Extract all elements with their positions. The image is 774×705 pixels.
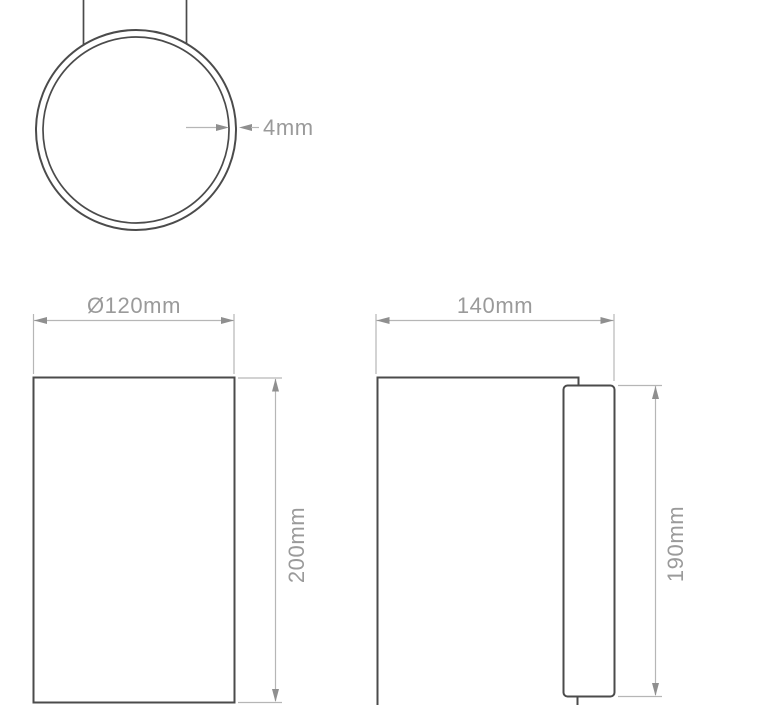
arrowhead-up-icon (272, 379, 279, 392)
width-dimension: Ø120mm (34, 293, 235, 374)
dimension-drawing: 4mm Ø120mm 200mm (0, 0, 774, 705)
technical-drawing-canvas: 4mm Ø120mm 200mm (0, 0, 774, 705)
arrowhead-down-icon (652, 683, 659, 696)
arrowhead-down-icon (272, 689, 279, 702)
side-view: 140mm 190mm (376, 293, 688, 705)
dim-label-side-height: 190mm (663, 506, 688, 582)
body-outline (378, 378, 579, 705)
arrowhead-right-icon (221, 317, 234, 324)
dim-label-front-width: Ø120mm (87, 293, 181, 318)
front-view: Ø120mm 200mm (34, 293, 310, 703)
arrowhead-up-icon (652, 386, 659, 399)
depth-dimension: 140mm (376, 293, 614, 381)
top-view: 4mm (36, 0, 314, 230)
dim-label-ring-thickness: 4mm (263, 115, 314, 140)
dim-label-side-depth: 140mm (457, 293, 533, 318)
arrowhead-right-icon (601, 317, 614, 324)
arrowhead-left-icon (239, 124, 252, 131)
arrowhead-left-icon (34, 317, 47, 324)
arrowhead-left-icon (377, 317, 390, 324)
backplate-outline (564, 386, 615, 697)
outer-circle (36, 30, 236, 230)
body-outline (34, 378, 235, 703)
backplate-height-dimension: 190mm (618, 386, 688, 697)
dim-label-front-height: 200mm (284, 507, 309, 583)
height-dimension: 200mm (238, 378, 309, 703)
